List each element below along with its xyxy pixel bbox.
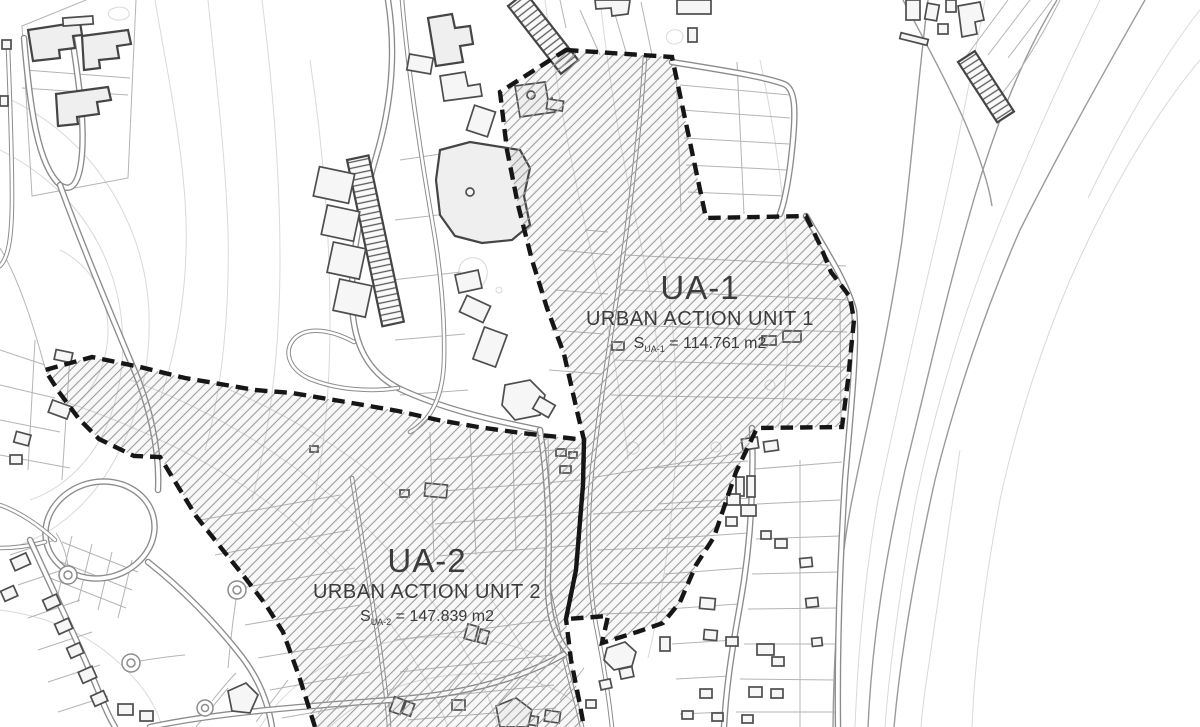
area-value: = 147.839 m2: [396, 608, 494, 625]
zone-ua1-name: URBAN ACTION UNIT 1: [575, 307, 825, 331]
map-drawing: [0, 0, 1200, 727]
zone-label-ua2: UA-2 URBAN ACTION UNIT 2 SUA-2 = 147.839…: [302, 543, 552, 627]
area-subscript: UA-2: [371, 617, 392, 627]
area-symbol: S: [360, 608, 371, 625]
zone-ua2-area: SUA-2 = 147.839 m2: [302, 608, 552, 627]
area-symbol: S: [634, 335, 645, 352]
zone-ua2-code: UA-2: [302, 543, 552, 579]
urban-planning-map: UA-1 URBAN ACTION UNIT 1 SUA-1 = 114.761…: [0, 0, 1200, 727]
area-value: = 114.761 m2: [669, 335, 766, 352]
zone-ua2-hatch: [45, 357, 584, 727]
zone-ua1-area: SUA-1 = 114.761 m2: [575, 335, 825, 354]
zone-label-ua1: UA-1 URBAN ACTION UNIT 1 SUA-1 = 114.761…: [575, 270, 825, 354]
zone-ua2-name: URBAN ACTION UNIT 2: [302, 580, 552, 604]
area-subscript: UA-1: [644, 344, 665, 354]
zone-ua1-code: UA-1: [575, 270, 825, 306]
